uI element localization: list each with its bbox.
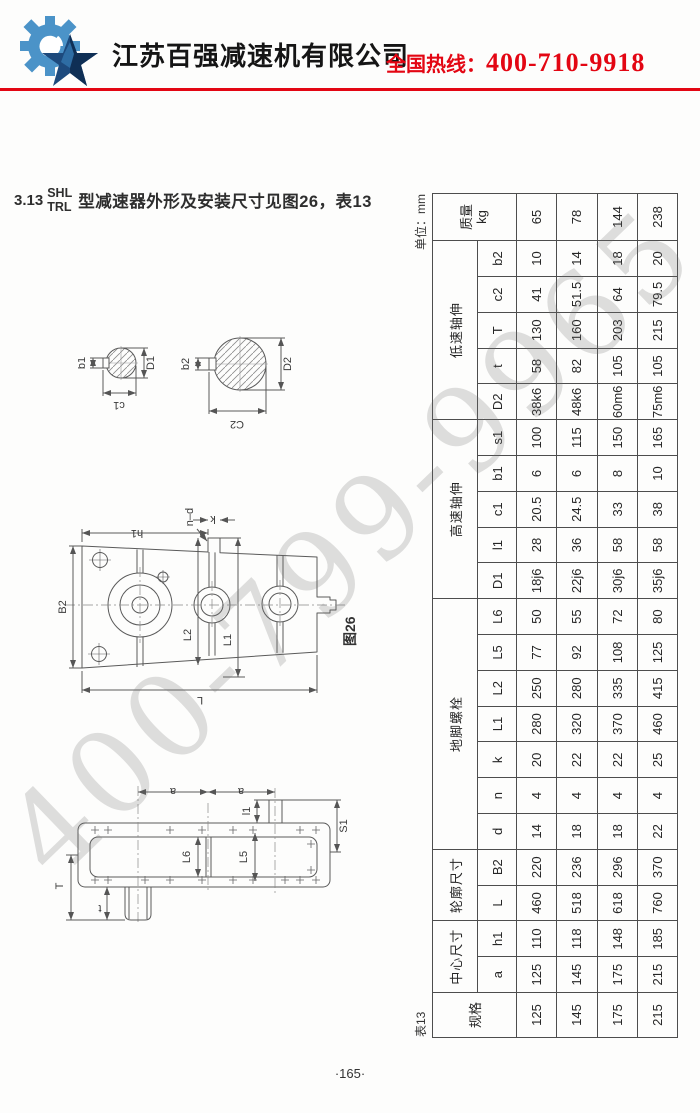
table-cell: 144 xyxy=(597,194,637,241)
table-header-cell: L5 xyxy=(478,635,517,671)
model-shl: SHL xyxy=(47,186,72,200)
dim-label-b1: b1 xyxy=(78,357,88,369)
top-view-drawing: B2 h1 n–d k L2 L1 L xyxy=(55,485,365,720)
table-cell: 335 xyxy=(597,670,637,706)
table-cell: 75m6 xyxy=(637,384,677,420)
model-codes: SHLTRL xyxy=(47,186,72,215)
table-cell: 4 xyxy=(517,778,557,814)
table-cell: 20 xyxy=(517,742,557,778)
table-cell: 160 xyxy=(557,312,597,348)
figure-caption: 图26 xyxy=(340,616,360,646)
mass-header-line: kg xyxy=(475,194,490,240)
table-cell: 28 xyxy=(517,527,557,563)
table-cell: 100 xyxy=(517,420,557,456)
dim-label-D1: D1 xyxy=(145,356,157,370)
table-cell: 58 xyxy=(637,527,677,563)
table-header-cell: c1 xyxy=(478,491,517,527)
table-cell: 4 xyxy=(637,778,677,814)
table-header-cell: 中心尺寸 xyxy=(433,921,478,993)
table-cell: 58 xyxy=(517,348,557,384)
dim-label-L2: L2 xyxy=(182,629,194,641)
table-cell: 145 xyxy=(557,993,597,1038)
table-cell: 148 xyxy=(597,921,637,957)
table-cell: 58 xyxy=(597,527,637,563)
table-cell: 82 xyxy=(557,348,597,384)
table-cell: 72 xyxy=(597,599,637,635)
dim-label-c1: c1 xyxy=(113,399,125,411)
dimension-table-rotated: 表13 单位：mm 规格中心尺寸轮廓尺寸地脚螺栓高速轴伸低速轴伸质量kgah1L… xyxy=(412,193,678,1038)
table-header-cell: B2 xyxy=(478,849,517,885)
table-cell: 150 xyxy=(597,420,637,456)
section-text: 型减速器外形及安装尺寸见图26，表13 xyxy=(78,188,372,212)
table-header-cell: 质量kg xyxy=(433,194,517,241)
table-cell: 78 xyxy=(557,194,597,241)
table-cell: 92 xyxy=(557,635,597,671)
dim-label-b2: b2 xyxy=(180,358,192,370)
table-cell: 236 xyxy=(557,849,597,885)
red-divider xyxy=(0,88,700,91)
table-cell: 25 xyxy=(637,742,677,778)
table-cell: 220 xyxy=(517,849,557,885)
table-cell: 77 xyxy=(517,635,557,671)
table-cell: 51.5 xyxy=(557,277,597,313)
table-header-cell: 规格 xyxy=(433,993,517,1038)
table-cell: 175 xyxy=(597,957,637,993)
table-row: 12512511046022014420280250775018j62820.5… xyxy=(517,194,557,1038)
page-number: ·165· xyxy=(0,1066,700,1081)
table-header-cell: L xyxy=(478,885,517,921)
section-title: 3.13 SHLTRL 型减速器外形及安装尺寸见图26，表13 xyxy=(14,186,372,215)
table-cell: 125 xyxy=(637,635,677,671)
table-cell: 4 xyxy=(557,778,597,814)
dim-label-L: L xyxy=(197,694,203,706)
table-cell: 38 xyxy=(637,491,677,527)
dim-label-L6: L6 xyxy=(181,851,193,863)
table-cell: 22j6 xyxy=(557,563,597,599)
table-cell: 460 xyxy=(517,885,557,921)
model-trl: TRL xyxy=(47,200,71,214)
table-cell: 14 xyxy=(557,241,597,277)
table-cell: 165 xyxy=(637,420,677,456)
table-cell: 108 xyxy=(597,635,637,671)
table-cell: 50 xyxy=(517,599,557,635)
table-cell: 175 xyxy=(597,993,637,1038)
table-cell: 760 xyxy=(637,885,677,921)
table-cell: 55 xyxy=(557,599,597,635)
table-cell: 238 xyxy=(637,194,677,241)
table-cell: 80 xyxy=(637,599,677,635)
dim-label-B2: B2 xyxy=(57,600,69,613)
shaft-section-drawing: b1 D1 c1 b2 D2 C2 xyxy=(78,318,313,443)
table-header-cell: L1 xyxy=(478,706,517,742)
table-cell: 14 xyxy=(517,814,557,850)
dim-label-a-right: a xyxy=(237,785,244,797)
table-header-cell: 地脚螺栓 xyxy=(433,599,478,850)
spec-table: 规格中心尺寸轮廓尺寸地脚螺栓高速轴伸低速轴伸质量kgah1LB2dnkL1L2L… xyxy=(432,193,678,1038)
table-header-cell: D2 xyxy=(478,384,517,420)
table-cell: 38k6 xyxy=(517,384,557,420)
section-number: 3.13 xyxy=(14,192,43,209)
table-cell: 22 xyxy=(637,814,677,850)
table-header-cell: b1 xyxy=(478,456,517,492)
table-cell: 125 xyxy=(517,993,557,1038)
table-cell: 6 xyxy=(517,456,557,492)
table-header-cell: b2 xyxy=(478,241,517,277)
table-header-cell: s1 xyxy=(478,420,517,456)
table-cell: 203 xyxy=(597,312,637,348)
table-cell: 250 xyxy=(517,670,557,706)
table-cell: 185 xyxy=(637,921,677,957)
hotline: 全国热线：400-710-9918 xyxy=(386,48,645,78)
table-unit: 单位：mm xyxy=(412,194,429,250)
table-cell: 280 xyxy=(517,706,557,742)
table-cell: 36 xyxy=(557,527,597,563)
table-cell: 22 xyxy=(557,742,597,778)
table-row: 175175148618296184223703351087230j658338… xyxy=(597,194,637,1038)
table-cell: 33 xyxy=(597,491,637,527)
table-cell: 48k6 xyxy=(557,384,597,420)
table-cell: 215 xyxy=(637,312,677,348)
table-cell: 115 xyxy=(557,420,597,456)
table-cell: 110 xyxy=(517,921,557,957)
dim-label-S1: S1 xyxy=(338,819,350,832)
dim-label-l1: l1 xyxy=(241,807,253,816)
company-name: 江苏百强减速机有限公司 xyxy=(112,36,409,73)
table-header-cell: L6 xyxy=(478,599,517,635)
table-header-cell: D1 xyxy=(478,563,517,599)
dim-label-t: t xyxy=(98,902,101,914)
table-caption-row: 表13 单位：mm xyxy=(412,193,432,1038)
table-header-cell: t xyxy=(478,348,517,384)
table-header-cell: 低速轴伸 xyxy=(433,241,478,420)
table-cell: 460 xyxy=(637,706,677,742)
dim-label-T: T xyxy=(54,882,66,889)
dim-label-k: k xyxy=(210,513,216,525)
dim-label-D2: D2 xyxy=(282,357,294,371)
table-cell: 18 xyxy=(557,814,597,850)
table-row: 215215185760370224254604151258035j658381… xyxy=(637,194,677,1038)
table-header-cell: h1 xyxy=(478,921,517,957)
table-cell: 280 xyxy=(557,670,597,706)
table-cell: 618 xyxy=(597,885,637,921)
table-cell: 6 xyxy=(557,456,597,492)
table-header-cell: n xyxy=(478,778,517,814)
table-cell: 145 xyxy=(557,957,597,993)
table-cell: 24.5 xyxy=(557,491,597,527)
table-cell: 22 xyxy=(597,742,637,778)
dim-label-h1: h1 xyxy=(131,527,143,539)
table-row: 14514511851823618422320280925522j63624.5… xyxy=(557,194,597,1038)
table-cell: 64 xyxy=(597,277,637,313)
table-cell: 10 xyxy=(517,241,557,277)
table-cell: 65 xyxy=(517,194,557,241)
table-cell: 35j6 xyxy=(637,563,677,599)
table-cell: 60m6 xyxy=(597,384,637,420)
table-cell: 370 xyxy=(637,849,677,885)
dim-label-C2: C2 xyxy=(230,418,244,430)
table-header-cell: c2 xyxy=(478,277,517,313)
company-logo xyxy=(12,8,108,90)
table-cell: 105 xyxy=(597,348,637,384)
table-cell: 18 xyxy=(597,241,637,277)
table-cell: 41 xyxy=(517,277,557,313)
table-cell: 18 xyxy=(597,814,637,850)
table-cell: 30j6 xyxy=(597,563,637,599)
table-cell: 130 xyxy=(517,312,557,348)
dim-label-a-left: a xyxy=(169,785,176,797)
front-view-drawing: a a l1 S1 L6 L5 T t xyxy=(50,778,360,930)
table-header-cell: L2 xyxy=(478,670,517,706)
dim-label-L5: L5 xyxy=(238,851,250,863)
table-cell: 4 xyxy=(597,778,637,814)
hotline-number: 400-710-9918 xyxy=(486,48,645,77)
table-header-cell: 轮廓尺寸 xyxy=(433,849,478,921)
table-cell: 370 xyxy=(597,706,637,742)
table-cell: 105 xyxy=(637,348,677,384)
table-header-cell: 高速轴伸 xyxy=(433,420,478,599)
table-cell: 79.5 xyxy=(637,277,677,313)
table-cell: 415 xyxy=(637,670,677,706)
table-cell: 118 xyxy=(557,921,597,957)
table-cell: 518 xyxy=(557,885,597,921)
table-header-cell: l1 xyxy=(478,527,517,563)
dim-label-L1: L1 xyxy=(222,634,234,646)
table-cell: 10 xyxy=(637,456,677,492)
table-header-cell: k xyxy=(478,742,517,778)
hotline-label: 全国热线： xyxy=(386,54,486,76)
table-cell: 20 xyxy=(637,241,677,277)
table-cell: 296 xyxy=(597,849,637,885)
mass-header-line: 质量 xyxy=(460,194,475,240)
table-cell: 215 xyxy=(637,993,677,1038)
scanned-catalog-page: 江苏百强减速机有限公司 全国热线：400-710-9918 3.13 SHLTR… xyxy=(0,0,700,1113)
table-cell: 20.5 xyxy=(517,491,557,527)
table-cell: 320 xyxy=(557,706,597,742)
table-cell: 215 xyxy=(637,957,677,993)
table-cell: 125 xyxy=(517,957,557,993)
dim-label-n-d: n–d xyxy=(184,508,196,526)
table-header-cell: T xyxy=(478,312,517,348)
table-cell: 18j6 xyxy=(517,563,557,599)
table-cell: 8 xyxy=(597,456,637,492)
table-number: 表13 xyxy=(412,1012,429,1037)
table-header-cell: a xyxy=(478,957,517,993)
table-header-cell: d xyxy=(478,814,517,850)
